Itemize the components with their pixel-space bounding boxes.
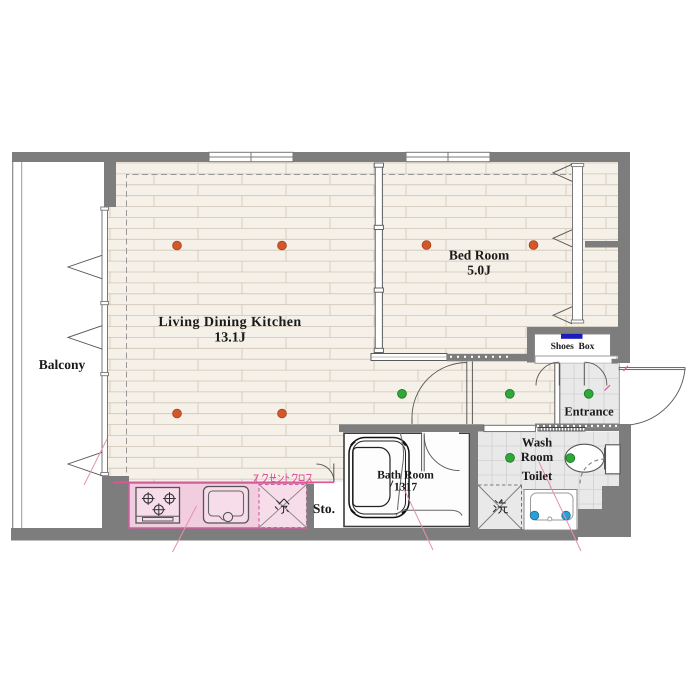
svg-text:Wash: Wash — [522, 436, 552, 450]
svg-text:Entrance: Entrance — [564, 405, 614, 419]
svg-text:5.0J: 5.0J — [467, 263, 491, 278]
svg-text:Sto.: Sto. — [313, 501, 335, 516]
svg-text:Bed Room: Bed Room — [449, 248, 510, 263]
svg-text:13.1J: 13.1J — [214, 331, 246, 346]
svg-text:Shoes Box: Shoes Box — [551, 342, 595, 352]
svg-text:Room: Room — [521, 450, 554, 464]
svg-text:Balcony: Balcony — [39, 357, 86, 372]
svg-text:Living Dining Kitchen: Living Dining Kitchen — [158, 315, 301, 330]
